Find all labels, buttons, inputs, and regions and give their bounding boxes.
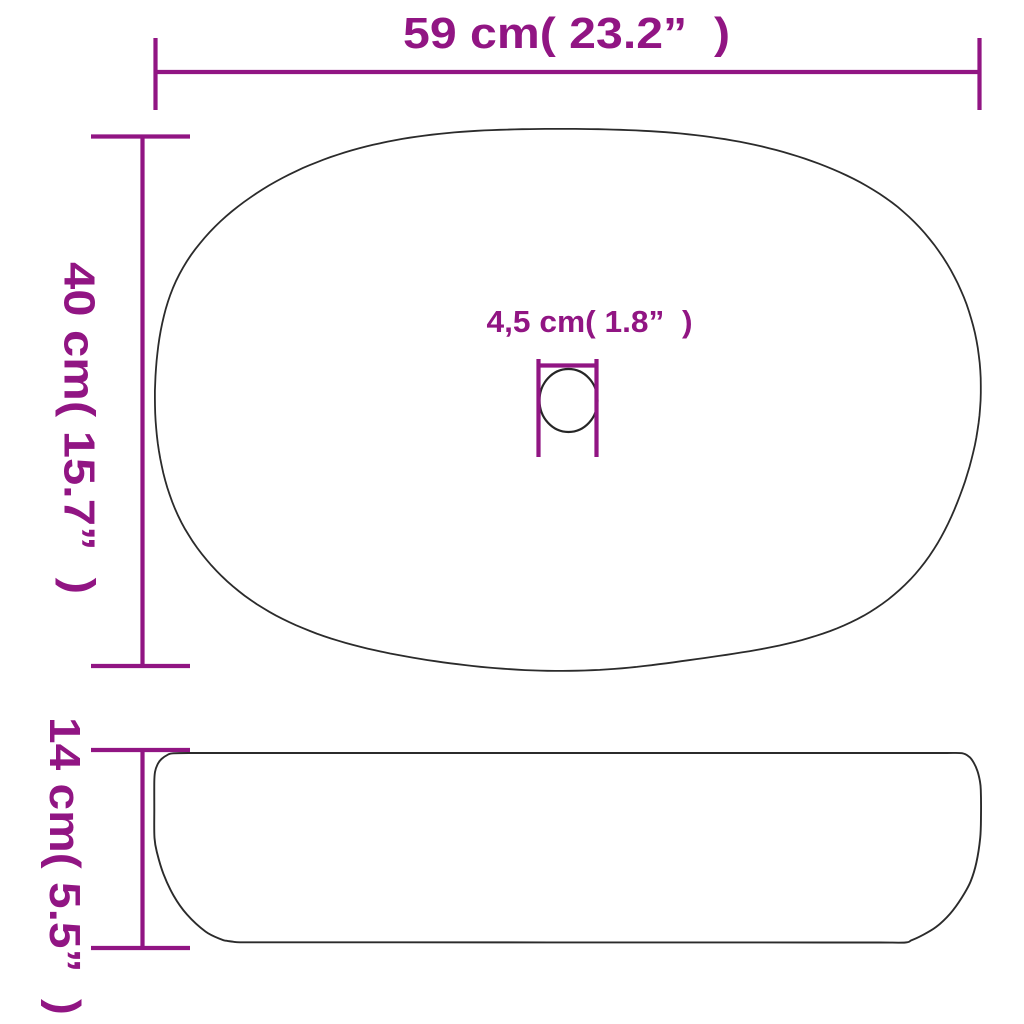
- svg-text:40 cm( 15.7” ): 40 cm( 15.7” ): [55, 262, 104, 594]
- svg-text:4,5 cm( 1.8” ): 4,5 cm( 1.8” ): [487, 305, 693, 339]
- svg-text:14 cm( 5.5” ): 14 cm( 5.5” ): [40, 717, 89, 1015]
- svg-text:59 cm( 23.2” ): 59 cm( 23.2” ): [403, 9, 730, 58]
